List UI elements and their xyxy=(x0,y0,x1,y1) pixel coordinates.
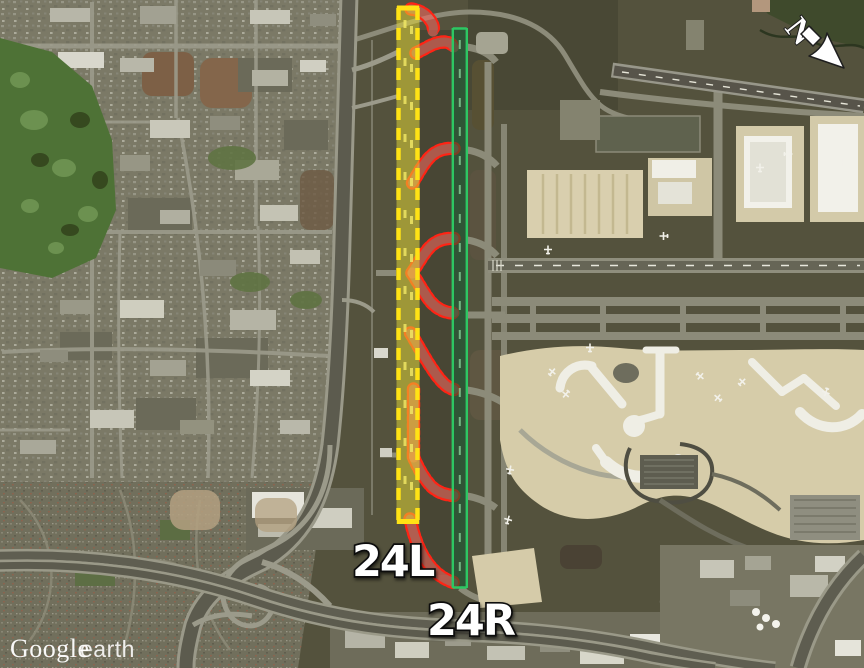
parallel-taxiways xyxy=(492,297,864,340)
runway-24l-highlight-overlay xyxy=(397,6,420,524)
runway-24l-label: 24L xyxy=(352,537,435,587)
cross-runway-horizontal xyxy=(488,258,864,273)
airfield-facility xyxy=(374,348,388,358)
watermark-product: earth xyxy=(80,636,135,662)
runway-24r-label: 24R xyxy=(427,596,516,646)
runway-24r-highlight-overlay xyxy=(452,28,468,588)
airfield-facility xyxy=(380,448,392,457)
runway-24l-fill xyxy=(397,6,420,524)
watermark-brand: Google xyxy=(10,634,90,663)
google-earth-watermark: Google earth xyxy=(10,634,135,663)
google-earth-satellite-view: 24L 24R N Google earth xyxy=(0,0,864,668)
